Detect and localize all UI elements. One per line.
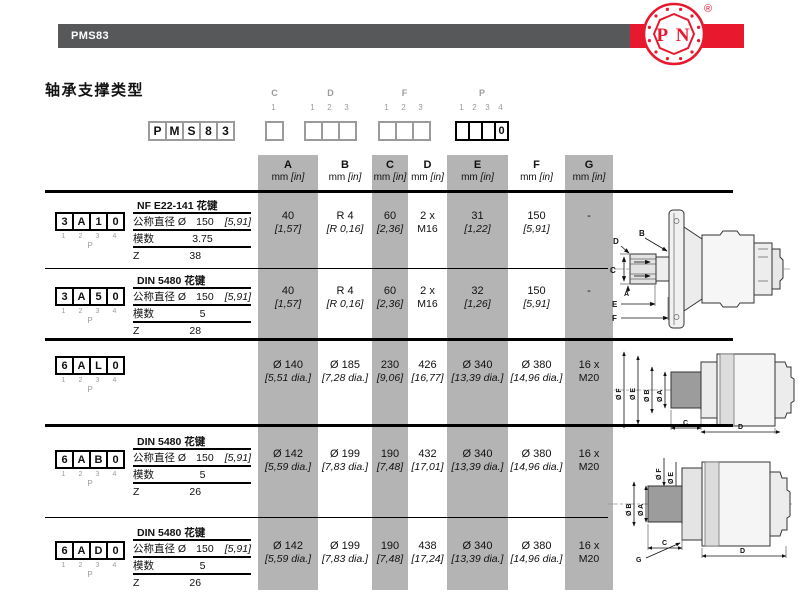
column-letter: C xyxy=(372,159,408,172)
column-header-f: Fmm [in] xyxy=(508,159,565,184)
value-mm: 31 xyxy=(447,209,508,223)
code-group-f: F123 xyxy=(378,88,431,141)
code-prefix-box: 3 xyxy=(216,121,235,141)
column-unit: mm [in] xyxy=(565,172,613,184)
column-letter: D xyxy=(408,159,447,172)
leader-d xyxy=(621,246,629,253)
value-mm: Ø 380 xyxy=(508,358,565,372)
header-separator xyxy=(45,190,733,193)
spec-value: 28 xyxy=(139,325,251,337)
drawing-wheel-version-6ab0-6ad0: Ø B Ø A Ø F Ø E C G D xyxy=(604,448,796,566)
spec-value: 5 xyxy=(154,308,251,320)
position-number: 1 xyxy=(455,103,468,115)
code-group-label: D xyxy=(304,88,357,103)
value-mm: 150 xyxy=(508,209,565,223)
spec-value: 3.75 xyxy=(154,233,251,245)
spec-inch-value: [5,91] xyxy=(225,216,251,228)
row-code-group-label: P xyxy=(55,316,125,325)
dim-label-d: D xyxy=(613,237,619,246)
dim-value-g: - xyxy=(565,209,613,223)
flange-ring xyxy=(682,468,702,540)
spec-module: 模数3.75 xyxy=(133,231,251,248)
unit-inch: [in] xyxy=(291,172,304,183)
leader-b xyxy=(645,238,667,251)
dim-value-a: Ø 140[5,51 dia.] xyxy=(258,358,318,385)
value-in: [17,24] xyxy=(408,553,447,566)
spec-teeth-count: Z28 xyxy=(133,323,251,338)
dim-value-f: Ø 380[14,96 dia.] xyxy=(508,539,565,566)
value-in: M16 xyxy=(408,298,447,311)
unit-inch: [in] xyxy=(348,172,361,183)
value-mm: 190 xyxy=(372,539,408,553)
spec-value: 5 xyxy=(154,469,251,481)
spec-value: 26 xyxy=(139,486,251,498)
value-in: [16,77] xyxy=(408,372,447,385)
cam-ring-band xyxy=(705,462,719,546)
spec-label: 模数 xyxy=(133,231,154,246)
value-mm: 2 x xyxy=(408,284,447,298)
position-number: 2 xyxy=(395,103,412,115)
code-box: 0 xyxy=(106,450,125,469)
position-number: 2 xyxy=(72,308,89,315)
column-letter: E xyxy=(447,159,508,172)
dim-label-a: Ø A xyxy=(657,390,664,402)
spec-inch-value: [5,91] xyxy=(225,452,251,464)
wheel-hub xyxy=(648,486,682,522)
row-separator xyxy=(45,338,733,341)
value-mm: 40 xyxy=(258,284,318,298)
dim-value-b: Ø 199[7,83 dia.] xyxy=(318,539,372,566)
dim-label-f: Ø F xyxy=(616,388,623,400)
position-number: 3 xyxy=(89,233,106,240)
spec-teeth-count: Z26 xyxy=(133,575,251,590)
spec-value: 38 xyxy=(139,250,251,262)
position-number: 3 xyxy=(89,471,106,478)
code-group-positions: 123 xyxy=(304,103,357,115)
dim-value-c: 230[9,06] xyxy=(372,358,408,385)
value-mm: Ø 340 xyxy=(447,539,508,553)
row-code-positions: 1234 xyxy=(55,308,127,315)
value-mm: R 4 xyxy=(318,209,372,223)
unit-mm: mm xyxy=(272,172,289,183)
dim-value-f: 150[5,91] xyxy=(508,209,565,236)
unit-inch: [in] xyxy=(540,172,553,183)
value-mm: 60 xyxy=(372,284,408,298)
value-mm: Ø 380 xyxy=(508,447,565,461)
value-mm: Ø 340 xyxy=(447,447,508,461)
code-box: 0 xyxy=(106,287,125,306)
column-letter: F xyxy=(508,159,565,172)
dim-value-b: R 4[R 0,16] xyxy=(318,284,372,311)
code-group-c: C1 xyxy=(265,88,284,141)
hub-cone xyxy=(684,227,702,311)
value-mm: Ø 142 xyxy=(258,539,318,553)
value-in: [13,39 dia.] xyxy=(447,461,508,474)
row-code: 3A501234P xyxy=(55,287,127,325)
dim-value-f: 150[5,91] xyxy=(508,284,565,311)
position-number: 4 xyxy=(106,471,123,478)
value-in: M20 xyxy=(565,372,613,385)
column-unit: mm [in] xyxy=(318,172,372,184)
spec-inch-value: [5,91] xyxy=(225,543,251,555)
spec-value: 5 xyxy=(154,560,251,572)
dim-label-b: Ø B xyxy=(626,504,633,516)
spec-label: 模数 xyxy=(133,467,154,482)
code-option-box xyxy=(412,121,431,141)
dim-value-a: Ø 142[5,59 dia.] xyxy=(258,447,318,474)
position-number: 1 xyxy=(55,377,72,384)
dim-label-b: B xyxy=(639,229,645,238)
valve-housing xyxy=(770,472,790,536)
spec-module: 模数5 xyxy=(133,558,251,575)
position-number: 1 xyxy=(55,308,72,315)
logo-text: P N xyxy=(656,25,691,46)
row-code-positions: 1234 xyxy=(55,377,127,384)
spec-label: 公称直径 Ø xyxy=(133,289,186,304)
code-group-boxes xyxy=(265,121,284,141)
column-letter: B xyxy=(318,159,372,172)
value-in: [13,39 dia.] xyxy=(447,553,508,566)
code-group-boxes: 0 xyxy=(455,121,509,141)
dim-label-d: D xyxy=(738,424,743,431)
position-number: 3 xyxy=(338,103,355,115)
drawing-shaft-version: C D B A E F xyxy=(608,197,794,333)
spec-label: 模数 xyxy=(133,558,154,573)
dim-value-b: R 4[R 0,16] xyxy=(318,209,372,236)
code-group-positions: 1 xyxy=(265,103,284,115)
code-box: 0 xyxy=(106,212,125,231)
position-number: 3 xyxy=(89,377,106,384)
column-letter: A xyxy=(258,159,318,172)
spec-nominal-diameter: 公称直径 Ø150[5,91] xyxy=(133,450,251,467)
dim-label-f: Ø F xyxy=(656,468,663,480)
dim-value-e: 31[1,22] xyxy=(447,209,508,236)
value-in: [7,48] xyxy=(372,461,408,474)
position-number: 2 xyxy=(321,103,338,115)
spec-teeth-count: Z38 xyxy=(133,248,251,263)
value-mm: 16 x xyxy=(565,358,613,372)
dim-value-c: 190[7,48] xyxy=(372,447,408,474)
code-option-box xyxy=(338,121,357,141)
product-code: PMS83 xyxy=(58,24,630,48)
value-mm: 150 xyxy=(508,284,565,298)
row-code-boxes: 6AL0 xyxy=(55,356,127,375)
value-mm: Ø 185 xyxy=(318,358,372,372)
spec-value: 150 xyxy=(186,216,224,228)
unit-inch: [in] xyxy=(481,172,494,183)
unit-inch: [in] xyxy=(393,172,406,183)
value-in: [5,51 dia.] xyxy=(258,372,318,385)
unit-inch: [in] xyxy=(592,172,605,183)
code-box: 0 xyxy=(106,541,125,560)
page-header-bar: PMS83 xyxy=(58,24,630,48)
dim-value-e: 32[1,26] xyxy=(447,284,508,311)
unit-mm: mm xyxy=(461,172,478,183)
dim-value-d: 438[17,24] xyxy=(408,539,447,566)
dim-value-d: 2 xM16 xyxy=(408,284,447,311)
value-in: [14,96 dia.] xyxy=(508,553,565,566)
value-mm: Ø 199 xyxy=(318,447,372,461)
code-option-box: 0 xyxy=(494,121,509,141)
model-code-prefix: PMS83 xyxy=(148,121,235,141)
position-number: 1 xyxy=(304,103,321,115)
column-unit: mm [in] xyxy=(258,172,318,184)
dim-value-a: 40[1,57] xyxy=(258,284,318,311)
spec-spline-standard: DIN 5480 花键 xyxy=(133,434,251,450)
unit-mm: mm xyxy=(520,172,537,183)
row-code-group-label: P xyxy=(55,479,125,488)
company-logo: P N ® xyxy=(628,0,748,68)
value-in: [13,39 dia.] xyxy=(447,372,508,385)
spec-inch-value: [5,91] xyxy=(225,291,251,303)
value-mm: - xyxy=(565,284,613,298)
value-mm: 190 xyxy=(372,447,408,461)
port-block xyxy=(772,249,783,289)
drawing-wheel-version-6al0: Ø F Ø E Ø B Ø A C D xyxy=(610,344,796,436)
dim-value-c: 190[7,48] xyxy=(372,539,408,566)
position-number: 2 xyxy=(72,233,89,240)
spec-label: 公称直径 Ø xyxy=(133,214,186,229)
value-in: [5,59 dia.] xyxy=(258,461,318,474)
code-group-boxes xyxy=(378,121,431,141)
position-number: 2 xyxy=(72,377,89,384)
row-code: 3A101234P xyxy=(55,212,127,250)
position-number: 1 xyxy=(378,103,395,115)
value-in: [5,91] xyxy=(508,298,565,311)
dim-label-e: Ø E xyxy=(668,472,675,484)
position-number: 4 xyxy=(494,103,507,115)
row-spec: NF E22-141 花键公称直径 Ø150[5,91]模数3.75Z38 xyxy=(133,198,251,263)
dim-value-b: Ø 199[7,83 dia.] xyxy=(318,447,372,474)
value-mm: 60 xyxy=(372,209,408,223)
row-code-boxes: 3A50 xyxy=(55,287,127,306)
spec-label: 公称直径 Ø xyxy=(133,541,186,556)
dim-value-g: - xyxy=(565,284,613,298)
row-spec: DIN 5480 花键公称直径 Ø150[5,91]模数5Z26 xyxy=(133,434,251,499)
value-mm: 426 xyxy=(408,358,447,372)
dim-label-e: Ø E xyxy=(630,388,637,400)
position-number: 4 xyxy=(106,562,123,569)
position-number: 2 xyxy=(72,471,89,478)
spec-nominal-diameter: 公称直径 Ø150[5,91] xyxy=(133,289,251,306)
dim-label-a: A xyxy=(624,291,629,298)
value-mm: Ø 340 xyxy=(447,358,508,372)
row-code-boxes: 3A10 xyxy=(55,212,127,231)
spec-spline-standard: DIN 5480 花键 xyxy=(133,525,251,541)
value-mm: 230 xyxy=(372,358,408,372)
position-number: 3 xyxy=(481,103,494,115)
value-in: [7,83 dia.] xyxy=(318,461,372,474)
column-header-g: Gmm [in] xyxy=(565,159,613,184)
dim-value-f: Ø 380[14,96 dia.] xyxy=(508,447,565,474)
spec-label: 模数 xyxy=(133,306,154,321)
spec-spline-standard: DIN 5480 花键 xyxy=(133,273,251,289)
column-header-e: Emm [in] xyxy=(447,159,508,184)
dim-label-c: C xyxy=(610,266,616,275)
column-header-d: Dmm [in] xyxy=(408,159,447,184)
shaft-neck xyxy=(656,257,669,281)
dim-value-d: 426[16,77] xyxy=(408,358,447,385)
position-number: 2 xyxy=(468,103,481,115)
dim-value-e: Ø 340[13,39 dia.] xyxy=(447,358,508,385)
spec-value: 150 xyxy=(186,543,224,555)
value-in: [5,59 dia.] xyxy=(258,553,318,566)
spec-value: 26 xyxy=(139,577,251,589)
dim-value-c: 60[2,36] xyxy=(372,284,408,311)
value-in: [14,96 dia.] xyxy=(508,372,565,385)
position-number: 4 xyxy=(106,308,123,315)
value-mm: 2 x xyxy=(408,209,447,223)
value-in: [R 0,16] xyxy=(318,223,372,236)
value-in: [5,91] xyxy=(508,223,565,236)
spec-label: 公称直径 Ø xyxy=(133,450,186,465)
dim-value-e: Ø 340[13,39 dia.] xyxy=(447,539,508,566)
row-code-group-label: P xyxy=(55,241,125,250)
code-group-label: C xyxy=(265,88,284,103)
column-header-b: Bmm [in] xyxy=(318,159,372,184)
spec-module: 模数5 xyxy=(133,467,251,484)
dim-value-a: 40[1,57] xyxy=(258,209,318,236)
dim-value-a: Ø 142[5,59 dia.] xyxy=(258,539,318,566)
row-spec: DIN 5480 花键公称直径 Ø150[5,91]模数5Z26 xyxy=(133,525,251,590)
value-in: [7,48] xyxy=(372,553,408,566)
code-group-p: P12340 xyxy=(455,88,509,141)
unit-mm: mm xyxy=(411,172,428,183)
valve-housing xyxy=(754,243,772,295)
dim-value-d: 2 xM16 xyxy=(408,209,447,236)
row-code-positions: 1234 xyxy=(55,562,127,569)
code-group-label: F xyxy=(378,88,431,103)
code-group-boxes xyxy=(304,121,357,141)
value-mm: Ø 199 xyxy=(318,539,372,553)
valve-housing xyxy=(775,362,794,418)
column-header-a: Amm [in] xyxy=(258,159,318,184)
row-code-boxes: 6AB0 xyxy=(55,450,127,469)
row-code-positions: 1234 xyxy=(55,471,127,478)
column-unit: mm [in] xyxy=(447,172,508,184)
dim-label-e: E xyxy=(612,300,618,309)
column-unit: mm [in] xyxy=(372,172,408,184)
position-number: 1 xyxy=(55,233,72,240)
row-code-boxes: 6AD0 xyxy=(55,541,127,560)
column-unit: mm [in] xyxy=(508,172,565,184)
row-separator xyxy=(45,268,608,269)
dim-value-e: Ø 340[13,39 dia.] xyxy=(447,447,508,474)
code-box: 0 xyxy=(106,356,125,375)
code-group-label: P xyxy=(455,88,509,103)
value-in: [2,36] xyxy=(372,298,408,311)
row-spec: DIN 5480 花键公称直径 Ø150[5,91]模数5Z28 xyxy=(133,273,251,338)
row-code: 6AD01234P xyxy=(55,541,127,579)
unit-mm: mm xyxy=(573,172,590,183)
value-in: [R 0,16] xyxy=(318,298,372,311)
cam-ring-band xyxy=(720,354,734,426)
value-in: [17,01] xyxy=(408,461,447,474)
column-header-c: Cmm [in] xyxy=(372,159,408,184)
position-number: 3 xyxy=(412,103,429,115)
value-in: [14,96 dia.] xyxy=(508,461,565,474)
row-code: 6AL01234P xyxy=(55,356,127,394)
dim-label-b: Ø B xyxy=(644,390,651,402)
code-option-box xyxy=(265,121,284,141)
registered-trademark: ® xyxy=(704,3,712,15)
value-in: [1,57] xyxy=(258,223,318,236)
value-in: [1,26] xyxy=(447,298,508,311)
row-separator xyxy=(45,424,733,427)
row-code-group-label: P xyxy=(55,385,125,394)
value-mm: 40 xyxy=(258,209,318,223)
value-in: [7,28 dia.] xyxy=(318,372,372,385)
mounting-flange xyxy=(669,210,684,328)
dim-value-g: 16 xM20 xyxy=(565,358,613,385)
dim-label-d: D xyxy=(740,548,745,555)
spec-value: 150 xyxy=(186,452,224,464)
value-in: M16 xyxy=(408,223,447,236)
dim-value-d: 432[17,01] xyxy=(408,447,447,474)
splined-shaft xyxy=(630,254,656,284)
position-number: 4 xyxy=(106,377,123,384)
position-number: 3 xyxy=(89,308,106,315)
spec-module: 模数5 xyxy=(133,306,251,323)
row-code-positions: 1234 xyxy=(55,233,127,240)
position-number: 2 xyxy=(72,562,89,569)
column-letter: G xyxy=(565,159,613,172)
dim-value-c: 60[2,36] xyxy=(372,209,408,236)
value-mm: Ø 142 xyxy=(258,447,318,461)
dim-label-f: F xyxy=(612,314,617,323)
value-mm: Ø 380 xyxy=(508,539,565,553)
code-group-positions: 123 xyxy=(378,103,431,115)
unit-mm: mm xyxy=(329,172,346,183)
position-number: 1 xyxy=(265,103,282,115)
dim-label-g: G xyxy=(636,557,642,564)
spec-nominal-diameter: 公称直径 Ø150[5,91] xyxy=(133,214,251,231)
value-in: [7,83 dia.] xyxy=(318,553,372,566)
position-number: 3 xyxy=(89,562,106,569)
row-separator xyxy=(45,517,608,518)
page-title: 轴承支撑类型 xyxy=(45,79,144,100)
position-number: 4 xyxy=(106,233,123,240)
value-in: [1,22] xyxy=(447,223,508,236)
value-mm: - xyxy=(565,209,613,223)
dim-value-b: Ø 185[7,28 dia.] xyxy=(318,358,372,385)
value-mm: Ø 140 xyxy=(258,358,318,372)
position-number: 1 xyxy=(55,562,72,569)
value-mm: R 4 xyxy=(318,284,372,298)
row-code-group-label: P xyxy=(55,570,125,579)
value-mm: 32 xyxy=(447,284,508,298)
dim-value-f: Ø 380[14,96 dia.] xyxy=(508,358,565,385)
spec-nominal-diameter: 公称直径 Ø150[5,91] xyxy=(133,541,251,558)
spec-value: 150 xyxy=(186,291,224,303)
motor-body xyxy=(702,231,754,307)
position-number: 1 xyxy=(55,471,72,478)
value-in: [9,06] xyxy=(372,372,408,385)
column-unit: mm [in] xyxy=(408,172,447,184)
code-group-d: D123 xyxy=(304,88,357,141)
dim-label-a: Ø A xyxy=(638,504,645,516)
code-group-positions: 1234 xyxy=(455,103,509,115)
unit-inch: [in] xyxy=(431,172,444,183)
spec-teeth-count: Z26 xyxy=(133,484,251,499)
row-code: 6AB01234P xyxy=(55,450,127,488)
spec-spline-standard: NF E22-141 花键 xyxy=(133,198,251,214)
hub-step xyxy=(701,362,717,418)
dim-label-c: C xyxy=(662,540,667,547)
wheel-hub xyxy=(671,372,701,408)
value-in: [2,36] xyxy=(372,223,408,236)
value-mm: 432 xyxy=(408,447,447,461)
